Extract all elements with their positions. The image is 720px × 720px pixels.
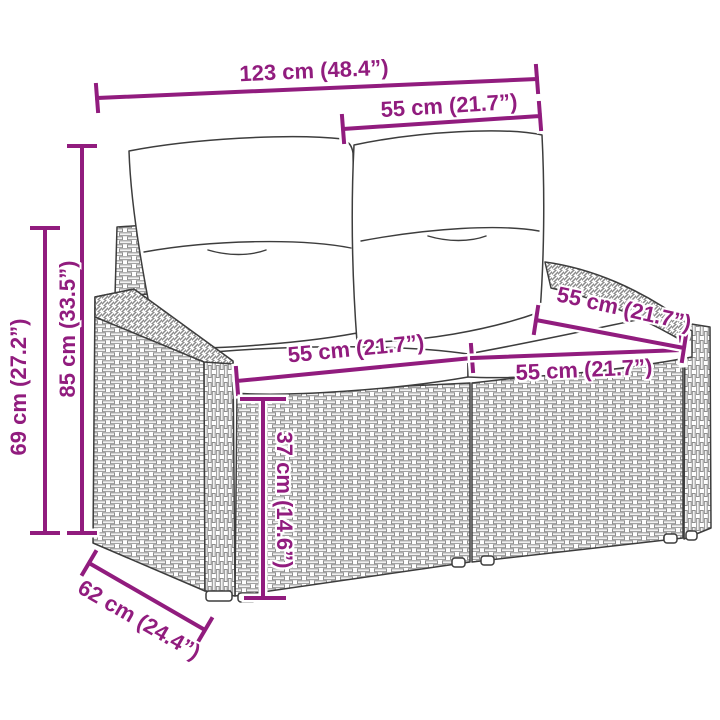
- left-armrest-front: [204, 360, 235, 596]
- back-cushion-right: [352, 131, 543, 342]
- dim-seat-height-label: 37 cm (14.6”): [271, 432, 297, 569]
- dimension-diagram: 123 cm (48.4”) 55 cm (21.7”) 85 cm (33.5…: [0, 0, 720, 720]
- dim-armrest-height-label: 69 cm (27.2”): [6, 319, 32, 456]
- base-module-right: [472, 359, 683, 562]
- dim-total-height-label: 85 cm (33.5”): [55, 261, 81, 398]
